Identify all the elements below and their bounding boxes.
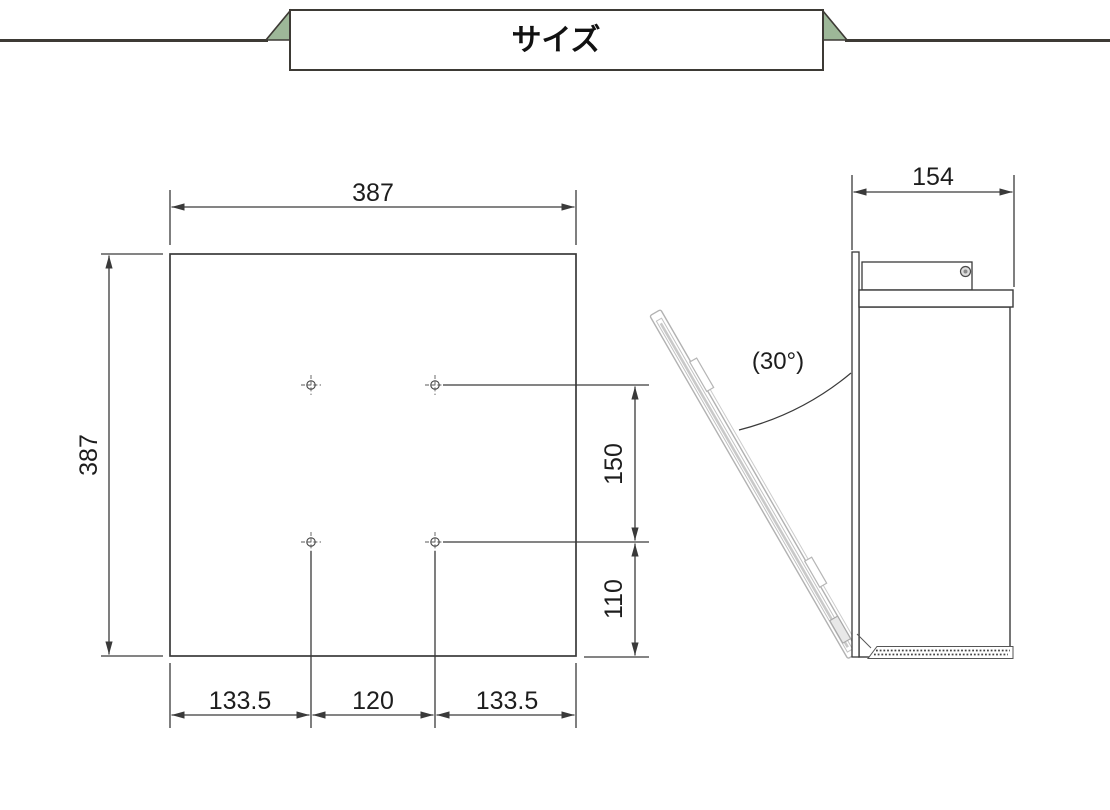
top-shelf-plate xyxy=(859,290,1013,307)
screw-icon xyxy=(961,267,971,277)
dim-label-bottom-left: 133.5 xyxy=(209,687,272,715)
body-outline xyxy=(859,307,1010,657)
dim-label-width-top: 387 xyxy=(352,179,394,207)
size-drawing-page: サイズ xyxy=(0,0,1110,810)
angle-arc xyxy=(739,373,851,430)
dim-label-bottom-right: 133.5 xyxy=(476,687,539,715)
banner-left-triangle-icon xyxy=(266,11,290,40)
dim-label-height-left: 387 xyxy=(75,434,103,476)
front-panel-outline xyxy=(170,254,576,656)
dim-height-left xyxy=(101,254,163,656)
top-latch-box xyxy=(862,262,972,290)
dim-label-110: 110 xyxy=(600,579,628,619)
angle-label: (30°) xyxy=(752,348,804,375)
side-view: (30°) 154 xyxy=(650,163,1014,659)
dim-label-depth: 154 xyxy=(912,163,954,191)
header-banner: サイズ xyxy=(0,10,1110,70)
dim-label-bottom-center: 120 xyxy=(352,687,394,715)
cabinet-body xyxy=(852,252,1013,659)
banner-right-triangle-icon xyxy=(823,11,847,40)
dim-label-150: 150 xyxy=(600,443,628,485)
page-title: サイズ xyxy=(511,23,600,57)
technical-drawing-canvas: サイズ xyxy=(0,0,1110,810)
back-panel xyxy=(852,252,859,657)
front-view: 387 387 150 110 xyxy=(75,179,649,728)
